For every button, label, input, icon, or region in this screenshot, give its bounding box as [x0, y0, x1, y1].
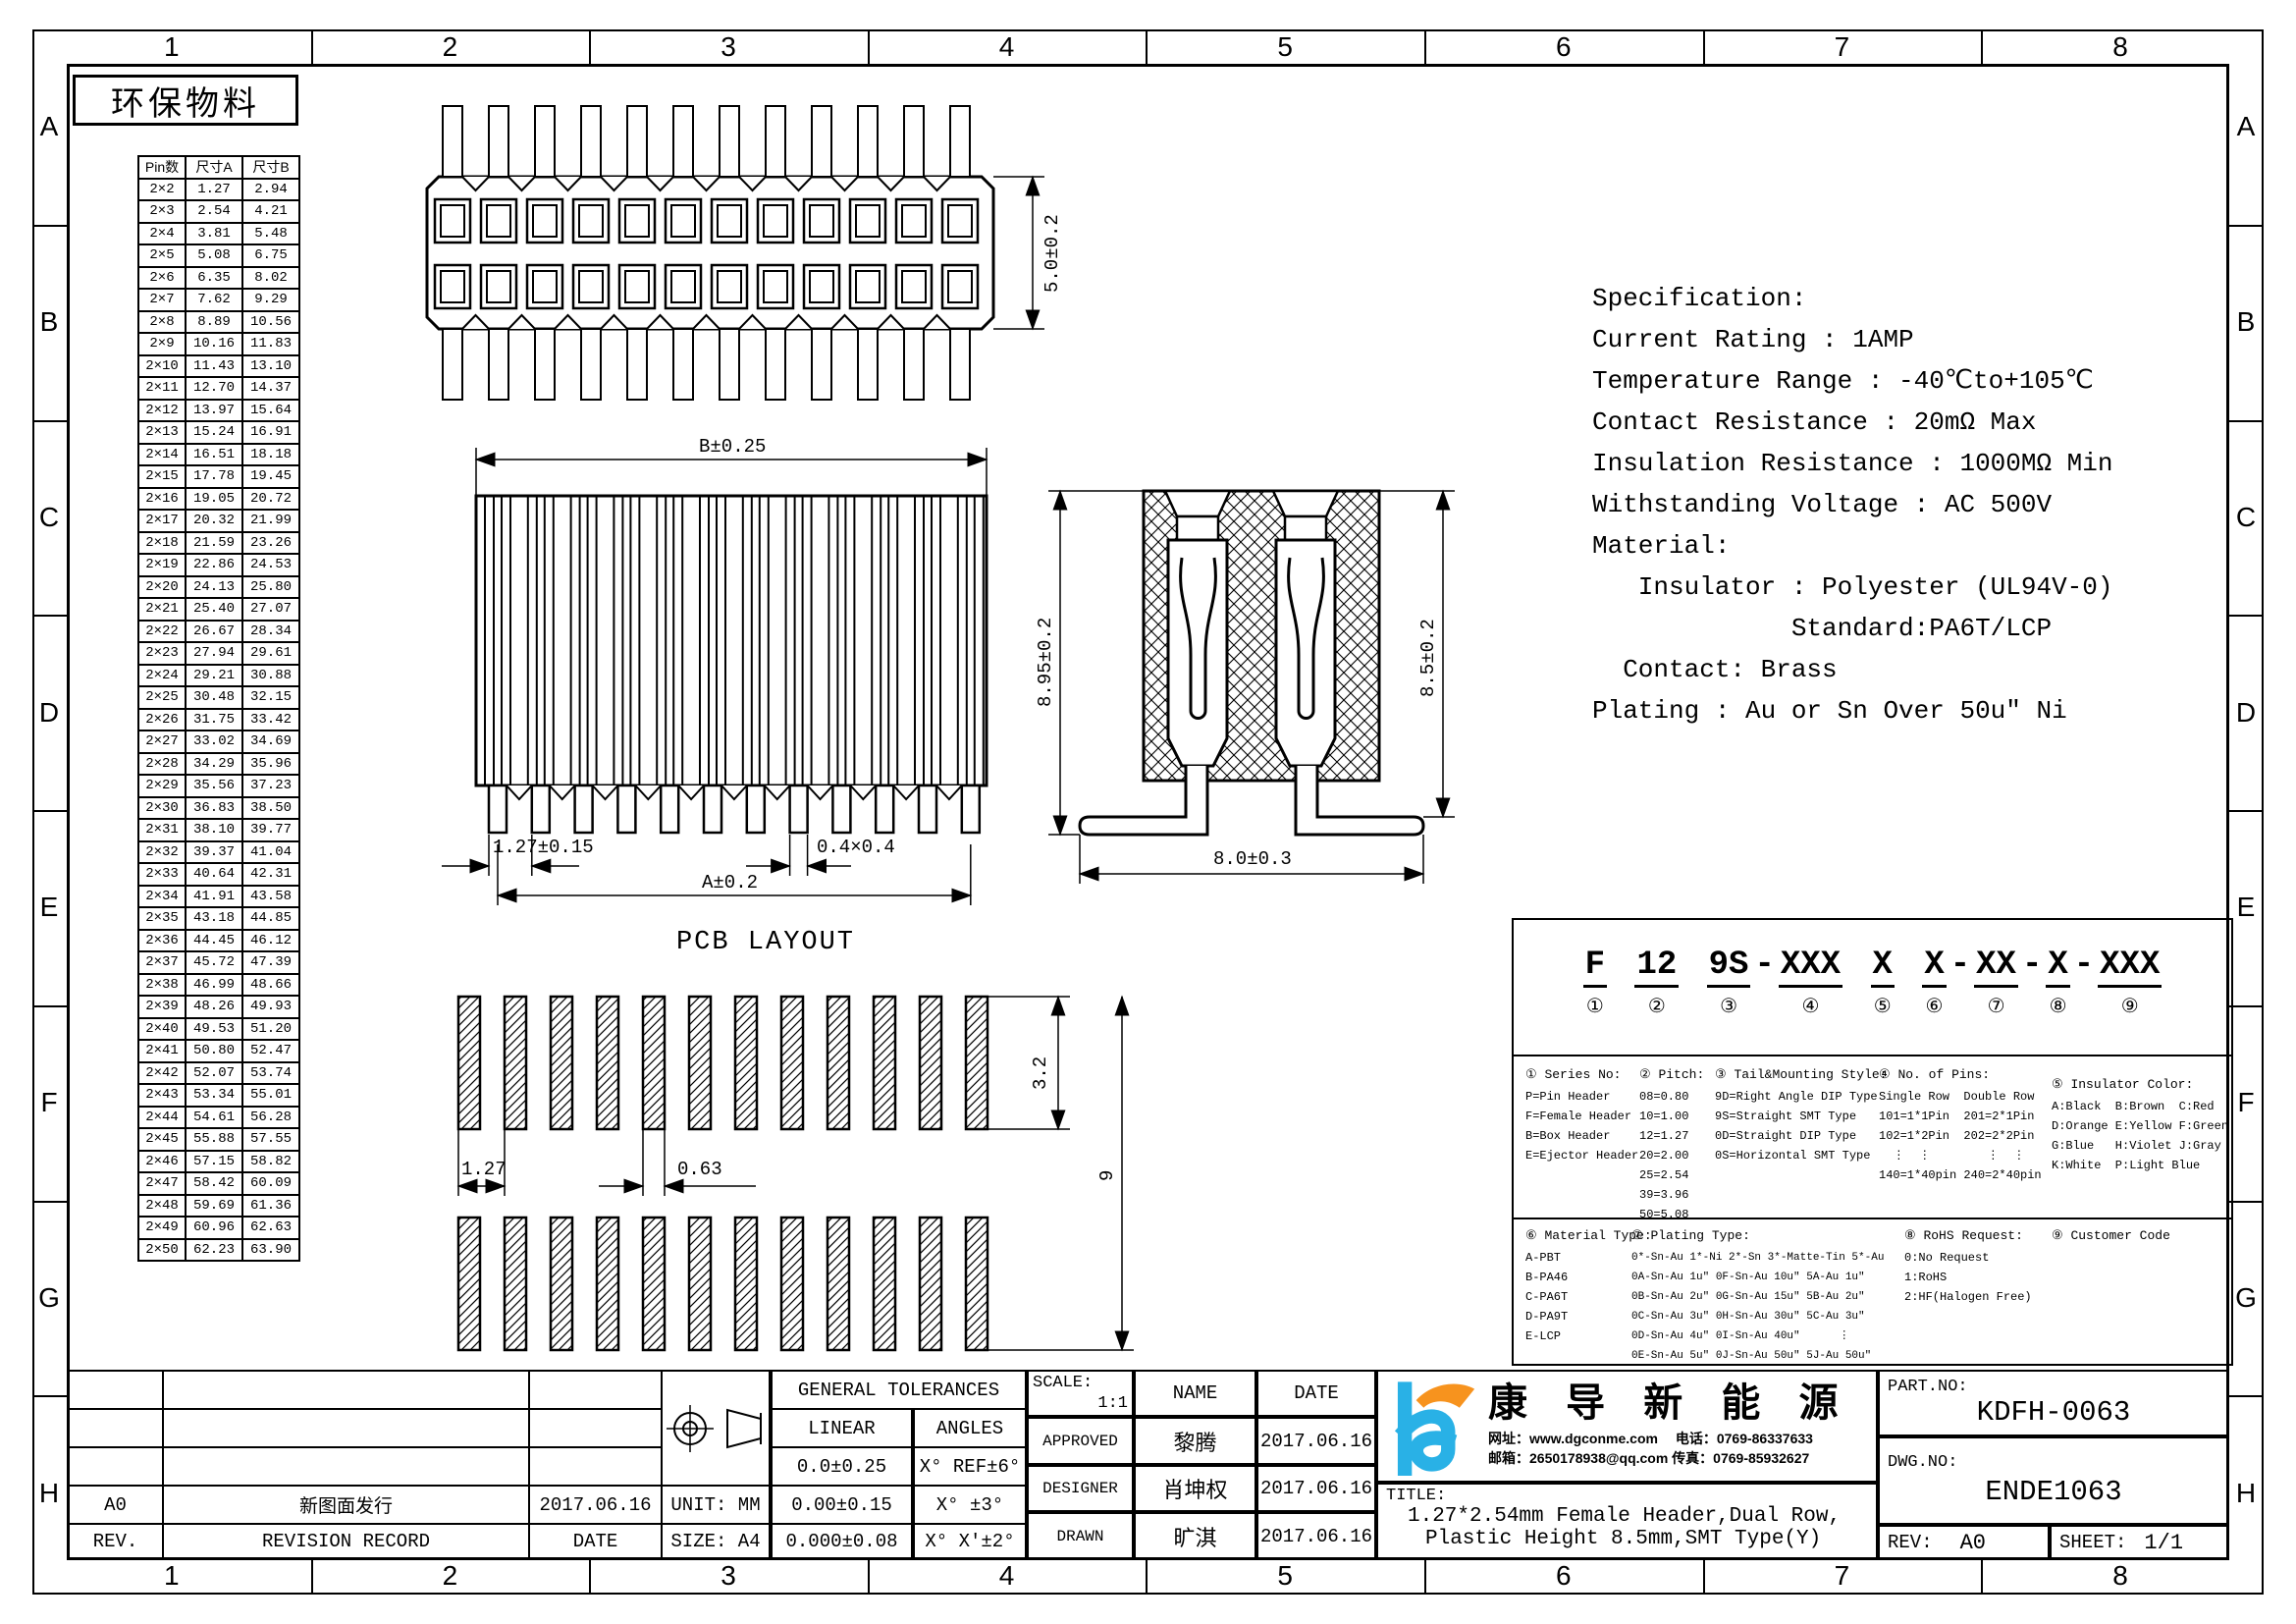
code-option-line: E=Ejector Header [1525, 1146, 1643, 1165]
code-option-line: 101=1*1Pin 201=2*1Pin [1879, 1107, 2051, 1126]
code-option-line: 0:No Request [1904, 1248, 2047, 1268]
drawing-sheet: 12345678 12345678 ABCDEFGH ABCDEFGH 环保物料… [0, 0, 2296, 1624]
zone-label: C [39, 502, 59, 533]
code-option-line: 25=2.54 [1639, 1165, 1723, 1185]
designer-name: 肖坤权 [1134, 1465, 1256, 1512]
drawing-title-line2: Plastic Height 8.5mm,SMT Type(Y) [1425, 1528, 1821, 1550]
pin-table-row: 2×2733.0234.69 [138, 731, 299, 753]
code-option-line: P=Pin Header [1525, 1087, 1643, 1107]
code-segment: F① [1583, 947, 1607, 1019]
code-option-line: C-PA6T [1525, 1287, 1633, 1307]
code-segment: XXX⑨ [2098, 947, 2162, 1019]
zone-label: 4 [999, 1560, 1015, 1592]
code-option-line: D-PA9T [1525, 1307, 1633, 1326]
eco-material-stamp: 环保物料 [73, 75, 298, 126]
code-option-line: 08=0.80 [1639, 1087, 1723, 1107]
zone-label: G [2235, 1282, 2257, 1314]
code-option-line: 10=1.00 [1639, 1107, 1723, 1126]
name-header: NAME [1134, 1370, 1256, 1417]
dim-front-pitch: 1.27±0.15 [493, 837, 594, 858]
pin-table-row: 2×3340.6442.31 [138, 863, 299, 886]
zone-label: E [40, 892, 59, 923]
tol-linear-3: 0.000±0.08 [771, 1523, 913, 1560]
dim-pcb-pad-w: 0.63 [677, 1159, 722, 1180]
dim-a-col-header: 尺寸A [186, 156, 242, 179]
spec-line: Withstanding Voltage : AC 500V [1592, 484, 2113, 525]
pin-table-row: 2×3239.3741.04 [138, 841, 299, 864]
code-option-line: D:Orange E:Yellow F:Green [2052, 1116, 2228, 1136]
third-angle-projection-icon [665, 1398, 767, 1459]
scale-cell: SCALE:1:1 [1027, 1370, 1134, 1417]
code-segment: XXX④ [1779, 947, 1842, 1019]
code-option-line: 140=1*40pin 240=2*40pin [1879, 1165, 2051, 1185]
dim-front-sq: 0.4×0.4 [817, 837, 895, 858]
pin-table-row: 2×1821.5923.26 [138, 532, 299, 555]
pin-table-row: 2×1213.9715.64 [138, 400, 299, 422]
dim-b-col-header: 尺寸B [242, 156, 299, 179]
dwg-no-cell: DWG.NO: ENDE1063 [1878, 1436, 2229, 1525]
pin-table-row: 2×88.8910.56 [138, 311, 299, 334]
zone-label: 8 [2112, 1560, 2128, 1592]
pin-table-row: 2×2429.2130.88 [138, 665, 299, 687]
pin-table-row: 2×910.1611.83 [138, 333, 299, 355]
code-option-line: A-PBT [1525, 1248, 1633, 1268]
dim-pcb-pad-h: 3.2 [1030, 1056, 1051, 1090]
zone-label: H [39, 1478, 59, 1509]
top-view-drawing: 5.0±0.2 [412, 79, 1065, 407]
code-option-line: E-LCP [1525, 1326, 1633, 1346]
pin-table-row: 2×3948.2649.93 [138, 996, 299, 1018]
date-header: DATE [1256, 1370, 1376, 1417]
pcb-layout-title: PCB LAYOUT [550, 928, 982, 957]
specification-block: Specification:Current Rating : 1AMPTempe… [1592, 278, 2113, 731]
zone-label: 4 [999, 31, 1015, 63]
spec-line: Material: [1592, 525, 2113, 567]
drawing-title-line1: 1.27*2.54mm Female Header,Dual Row, [1408, 1505, 1841, 1528]
pin-table-row: 2×32.544.21 [138, 200, 299, 223]
zone-label: H [2236, 1478, 2256, 1509]
code-option-line: B-PA46 [1525, 1268, 1633, 1287]
pin-table-row: 2×2327.9429.61 [138, 642, 299, 665]
pin-table-row: 2×55.086.75 [138, 244, 299, 267]
drawing-title-cell: TITLE: 1.27*2.54mm Female Header,Dual Ro… [1376, 1483, 1878, 1560]
company-logo-cell: 康 导 新 能 源 网址：www.dgconme.com 电话：0769-863… [1376, 1370, 1878, 1483]
part-no-value: KDFH-0063 [1977, 1396, 2131, 1429]
designer-role: DESIGNER [1027, 1465, 1134, 1512]
zone-label: 8 [2112, 31, 2128, 63]
zone-label: 5 [1277, 1560, 1293, 1592]
pin-table-row: 2×4758.4260.09 [138, 1172, 299, 1195]
pin-table-row: 2×4049.5351.20 [138, 1018, 299, 1041]
tol-angle-3: X° X'±2° [913, 1523, 1027, 1560]
pin-dimension-table: Pin数 尺寸A 尺寸B 2×21.272.942×32.544.212×43.… [137, 155, 300, 1262]
dim-pcb-span: 9 [1096, 1170, 1118, 1181]
zone-label: E [2237, 892, 2256, 923]
code-option-line: 0A-Sn-Au 1u″ 0F-Sn-Au 10u″ 5A-Au 1u″ [1631, 1268, 1895, 1287]
unit-cell: UNIT: MM [661, 1485, 771, 1525]
dim-front-a: A±0.2 [702, 872, 758, 893]
code-option-line: 0S=Horizontal SMT Type [1715, 1146, 1882, 1165]
company-logo-icon [1384, 1378, 1478, 1476]
code-option-line: ⋮ ⋮ ⋮ ⋮ [1879, 1146, 2051, 1165]
pin-table-row: 2×66.358.02 [138, 267, 299, 290]
revision-record-header: REVISION RECORD [162, 1523, 530, 1560]
code-option-line: 1:RoHS [1904, 1268, 2047, 1287]
dim-top-depth: 5.0±0.2 [1041, 214, 1063, 293]
pin-table-row: 2×2226.6728.34 [138, 621, 299, 643]
pin-table-row: 2×1720.3221.99 [138, 510, 299, 532]
spec-line: Insulation Resistance : 1000MΩ Min [1592, 443, 2113, 484]
code-option-line: Single Row Double Row [1879, 1087, 2051, 1107]
designer-date: 2017.06.16 [1256, 1465, 1376, 1512]
size-cell: SIZE: A4 [661, 1523, 771, 1560]
code-segment: X⑥ [1922, 947, 1946, 1019]
drawn-role: DRAWN [1027, 1512, 1134, 1560]
spec-line: Specification: [1592, 278, 2113, 319]
pin-table-row: 2×4150.8052.47 [138, 1040, 299, 1062]
pin-table-row: 2×2125.4027.07 [138, 598, 299, 621]
approved-date: 2017.06.16 [1256, 1417, 1376, 1465]
dim-front-b: B±0.25 [699, 436, 766, 458]
zone-label: B [40, 306, 59, 338]
dim-pcb-pitch: 1.27 [461, 1159, 507, 1180]
eco-material-label: 环保物料 [111, 77, 260, 125]
pin-table-row: 2×2631.7533.42 [138, 709, 299, 731]
revision-date-cell: 2017.06.16 [528, 1485, 663, 1525]
revision-date-header: DATE [528, 1523, 663, 1560]
pcb-layout-drawing: 1.27 0.63 3.2 9 [432, 982, 1163, 1370]
zone-label: 1 [164, 31, 180, 63]
zone-label: 5 [1277, 31, 1293, 63]
pin-table-row: 2×4960.9662.63 [138, 1217, 299, 1239]
zone-label: A [40, 111, 59, 142]
part-no-cell: PART.NO: KDFH-0063 [1878, 1370, 2229, 1436]
code-option-line: G:Blue H:Violet J:Gray [2052, 1136, 2228, 1156]
zone-label: 2 [443, 1560, 458, 1592]
code-option-line: B=Box Header [1525, 1126, 1643, 1146]
zone-label: 7 [1835, 1560, 1850, 1592]
code-option-line: 0E-Sn-Au 5u″ 0J-Sn-Au 50u″ 5J-Au 50u″ [1631, 1346, 1895, 1366]
code-option-line: 9S=Straight SMT Type [1715, 1107, 1882, 1126]
front-view-bottom-pins [489, 785, 980, 833]
pin-table-row: 2×4353.3455.01 [138, 1084, 299, 1107]
sheet-cell: SHEET:1/1 [2050, 1525, 2229, 1560]
code-option-line: F=Female Header [1525, 1107, 1643, 1126]
spec-line: Insulator : Polyester (UL94V-0) [1592, 567, 2113, 608]
zone-label: 1 [164, 1560, 180, 1592]
tol-angle-2: X° ±3° [913, 1485, 1027, 1525]
pin-table-row: 2×3644.4546.12 [138, 930, 299, 952]
pin-table-row: 2×1112.7014.37 [138, 377, 299, 400]
code-option-line: A:Black B:Brown C:Red [2052, 1097, 2228, 1116]
pin-table-row: 2×5062.2363.90 [138, 1239, 299, 1262]
approved-role: APPROVED [1027, 1417, 1134, 1465]
zone-label: G [38, 1282, 60, 1314]
zone-label: F [2237, 1087, 2254, 1118]
pin-table-row: 2×3036.8338.50 [138, 797, 299, 820]
code-option-line: 9D=Right Angle DIP Type [1715, 1087, 1882, 1107]
pin-table-row: 2×2530.4832.15 [138, 686, 299, 709]
pin-table-row: 2×77.629.29 [138, 289, 299, 311]
spec-line: Contact Resistance : 20mΩ Max [1592, 402, 2113, 443]
approved-name: 黎腾 [1134, 1417, 1256, 1465]
pcb-pads-top-row [458, 997, 988, 1129]
spec-line: Current Rating : 1AMP [1592, 319, 2113, 360]
projection-symbol-cell [661, 1370, 771, 1487]
company-name: 康 导 新 能 源 [1488, 1378, 1851, 1429]
code-option-line: 102=1*2Pin 202=2*2Pin [1879, 1126, 2051, 1146]
dim-side-body: 8.5±0.2 [1417, 619, 1439, 697]
company-contact-line2: 邮箱：2650178938@qq.com 传真：0769-85932627 [1488, 1448, 1851, 1468]
zone-label: 3 [721, 31, 736, 63]
zone-label: C [2236, 502, 2256, 533]
pin-table-row: 2×4555.8857.55 [138, 1128, 299, 1151]
pin-table-row: 2×2024.1325.80 [138, 576, 299, 599]
zone-label: A [2237, 111, 2256, 142]
front-view-drawing: B±0.25 1.27±0.15 0.4×0.4 A±0.2 [412, 422, 1065, 913]
dwg-no-value: ENDE1063 [1985, 1476, 2121, 1508]
code-option-line: K:White P:Light Blue [2052, 1156, 2228, 1175]
zone-label: 6 [1556, 1560, 1572, 1592]
code-option-line: 0B-Sn-Au 2u″ 0G-Sn-Au 15u″ 5B-Au 2u″ [1631, 1287, 1895, 1307]
zone-label: 6 [1556, 31, 1572, 63]
pin-table-row: 2×1315.2416.91 [138, 421, 299, 444]
spec-line: Contact: Brass [1592, 649, 2113, 690]
pin-table-row: 2×43.815.48 [138, 223, 299, 245]
code-option-line: 20=2.00 [1639, 1146, 1723, 1165]
pin-table-header: Pin数 尺寸A 尺寸B [138, 156, 299, 179]
pin-table-row: 2×1416.5118.18 [138, 444, 299, 466]
title-label: TITLE: [1386, 1487, 1446, 1505]
code-segment: X⑤ [1871, 947, 1895, 1019]
pin-table-row: 2×2834.2935.96 [138, 753, 299, 776]
code-option-line: 0D-Sn-Au 4u″ 0I-Sn-Au 40u″ ⋮ [1631, 1326, 1895, 1346]
zone-label: F [40, 1087, 57, 1118]
tol-linear-2: 0.00±0.15 [771, 1485, 913, 1525]
rev-cell: REV:A0 [1878, 1525, 2050, 1560]
code-option-line: 0C-Sn-Au 3u″ 0H-Sn-Au 30u″ 5C-Au 3u″ [1631, 1307, 1895, 1326]
pin-table-row: 2×3745.7247.39 [138, 951, 299, 974]
company-contact-line1: 网址：www.dgconme.com 电话：0769-86337633 [1488, 1429, 1851, 1448]
pin-table-row: 2×3441.9143.58 [138, 886, 299, 908]
zone-label: D [2236, 697, 2256, 729]
pin-table-row: 2×3846.9948.66 [138, 974, 299, 997]
code-option-line: 39=3.96 [1639, 1185, 1723, 1205]
pin-table-row: 2×1619.0520.72 [138, 488, 299, 511]
side-section-view: 8.95±0.2 8.5±0.2 8.0±0.3 [1021, 432, 1482, 893]
pin-table-row: 2×1517.7819.45 [138, 465, 299, 488]
zone-label: 2 [443, 31, 458, 63]
pin-table-row: 2×21.272.94 [138, 179, 299, 201]
pin-table-row: 2×1922.8624.53 [138, 554, 299, 576]
tol-linear-1: 0.0±0.25 [771, 1446, 913, 1487]
angles-header: ANGLES [913, 1408, 1027, 1448]
pin-table-row: 2×3138.1039.77 [138, 819, 299, 841]
code-option-line: 12=1.27 [1639, 1126, 1723, 1146]
drawn-date: 2017.06.16 [1256, 1512, 1376, 1560]
linear-header: LINEAR [771, 1408, 913, 1448]
rev-a0-cell: A0 [67, 1485, 164, 1525]
pin-table-row: 2×3543.1844.85 [138, 907, 299, 930]
zone-label: 3 [721, 1560, 736, 1592]
drawn-name: 旷淇 [1134, 1512, 1256, 1560]
code-segment: 9S③ [1707, 947, 1751, 1019]
code-option-line: 2:HF(Halogen Free) [1904, 1287, 2047, 1307]
pin-col-header: Pin数 [138, 156, 186, 179]
part-number-code-box: F① 12② 9S③-XXX④ X⑤ X⑥-XX⑦-X⑧-XXX⑨ ① Seri… [1512, 918, 2233, 1366]
code-option-line: 0*-Sn-Au 1*-Ni 2*-Sn 3*-Matte-Tin 5*-Au [1631, 1248, 1895, 1268]
code-segment: X⑧ [2046, 947, 2069, 1019]
dim-side-width: 8.0±0.3 [1213, 848, 1292, 870]
part-number-pattern: F① 12② 9S③-XXX④ X⑤ X⑥-XX⑦-X⑧-XXX⑨ [1514, 947, 2231, 1019]
pin-table-row: 2×4859.6961.36 [138, 1195, 299, 1218]
spec-line: Standard:PA6T/LCP [1592, 608, 2113, 649]
general-tolerances-header: GENERAL TOLERANCES [771, 1370, 1027, 1410]
tol-angle-1: X° REF±6° [913, 1446, 1027, 1487]
dim-side-total: 8.95±0.2 [1035, 618, 1056, 707]
zone-label: D [39, 697, 59, 729]
revision-record-cell: 新图面发行 [162, 1485, 530, 1525]
code-segment: XX⑦ [1974, 947, 2018, 1019]
pcb-pads-bottom-row [458, 1218, 988, 1350]
zone-label: 7 [1835, 31, 1850, 63]
pin-table-row: 2×4252.0753.74 [138, 1062, 299, 1085]
pin-table-row: 2×4454.6156.28 [138, 1107, 299, 1129]
code-option-line: 50=5.08 [1639, 1205, 1723, 1224]
pin-table-row: 2×4657.1558.82 [138, 1151, 299, 1173]
spec-line: Plating : Au or Sn Over 50u″ Ni [1592, 690, 2113, 731]
rev-header: REV. [67, 1523, 164, 1560]
zone-label: B [2237, 306, 2256, 338]
code-option-line: 0D=Straight DIP Type [1715, 1126, 1882, 1146]
code-segment: 12② [1634, 947, 1679, 1019]
pin-table-row: 2×1011.4313.10 [138, 355, 299, 378]
spec-line: Temperature Range : -40℃to+105℃ [1592, 360, 2113, 402]
pin-table-row: 2×2935.5637.23 [138, 775, 299, 797]
